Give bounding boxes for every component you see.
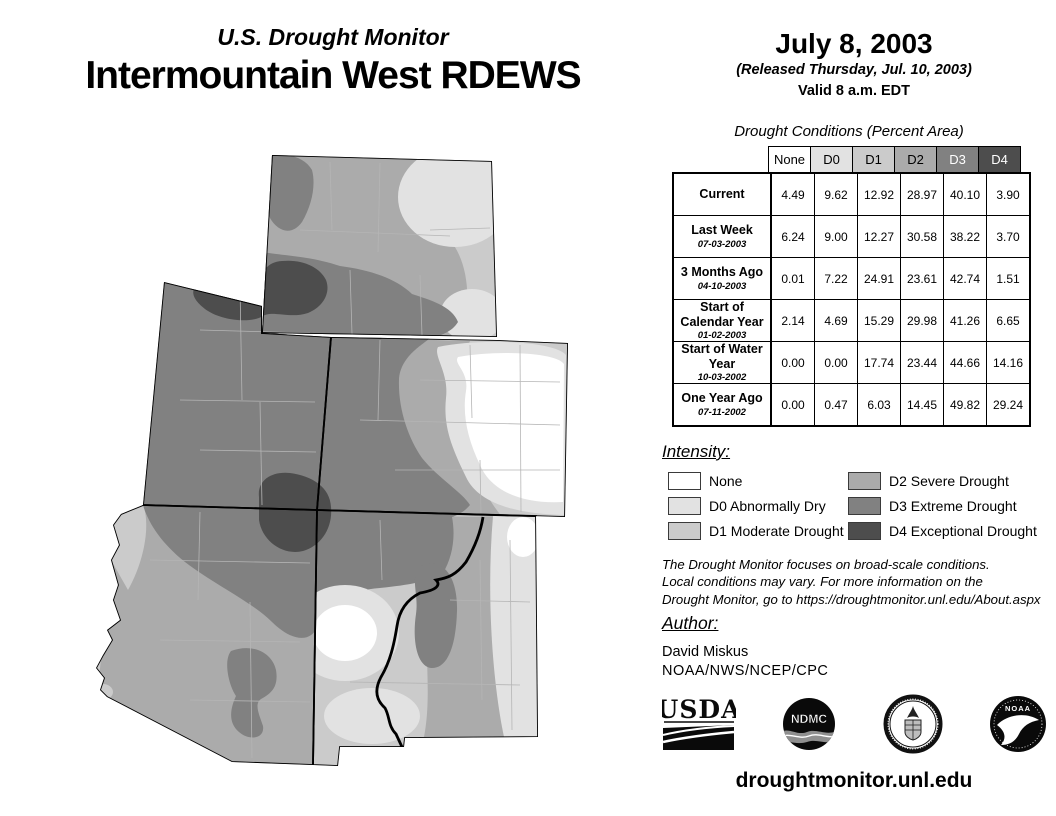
page-title: Intermountain West RDEWS — [30, 54, 636, 98]
legend-item: D2 Severe Drought — [848, 468, 1052, 493]
value-cell: 0.00 — [815, 342, 858, 384]
table-caption: Drought Conditions (Percent Area) — [672, 123, 1026, 140]
value-cell: 29.24 — [987, 384, 1031, 427]
table-row: Last Week07-03-20036.249.0012.2730.5838.… — [673, 216, 1030, 258]
row-label: One Year Ago07-11-2002 — [673, 384, 771, 427]
legend-label: D0 Abnormally Dry — [709, 498, 826, 514]
footer-url: droughtmonitor.unl.edu — [656, 769, 1052, 793]
value-cell: 3.70 — [987, 216, 1031, 258]
table-row: Start of Water Year10-03-20020.000.0017.… — [673, 342, 1030, 384]
legend-item: D1 Moderate Drought — [668, 518, 848, 543]
commerce-seal — [883, 694, 943, 754]
d3-swatch — [848, 497, 881, 515]
legend-label: D2 Severe Drought — [889, 473, 1009, 489]
shade-none-newmexico-ne — [507, 517, 539, 557]
d0-swatch — [668, 497, 701, 515]
value-cell: 9.00 — [815, 216, 858, 258]
drought-map-svg — [80, 130, 580, 780]
ndmc-logo: NDMC — [781, 696, 837, 752]
table-header-row: NoneD0D1D2D3D4 — [768, 146, 1021, 173]
author-heading: Author: — [662, 613, 718, 634]
disclaimer-line: Local conditions may vary. For more info… — [662, 573, 1041, 590]
row-label: Start of Calendar Year01-02-2003 — [673, 300, 771, 342]
table-row: Current4.499.6212.9228.9740.103.90 — [673, 173, 1030, 216]
value-cell: 15.29 — [858, 300, 901, 342]
drought-map — [80, 130, 580, 780]
value-cell: 42.74 — [944, 258, 987, 300]
value-cell: 12.92 — [858, 173, 901, 216]
row-label: 3 Months Ago04-10-2003 — [673, 258, 771, 300]
column-header-none: None — [768, 146, 811, 173]
disclaimer-line: The Drought Monitor focuses on broad-sca… — [662, 556, 1041, 573]
value-cell: 3.90 — [987, 173, 1031, 216]
legend-label: D3 Extreme Drought — [889, 498, 1017, 514]
released-date: (Released Thursday, Jul. 10, 2003) — [656, 62, 1052, 78]
shade-d0-wyoming-ne — [398, 147, 512, 247]
value-cell: 30.58 — [901, 216, 944, 258]
none-swatch — [668, 472, 701, 490]
value-cell: 4.69 — [815, 300, 858, 342]
legend-label: None — [709, 473, 742, 489]
row-label: Last Week07-03-2003 — [673, 216, 771, 258]
intensity-legend: NoneD0 Abnormally DryD1 Moderate Drought… — [668, 468, 1052, 543]
value-cell: 29.98 — [901, 300, 944, 342]
author-org: NOAA/NWS/NCEP/CPC — [662, 663, 828, 679]
legend-label: D4 Exceptional Drought — [889, 523, 1037, 539]
value-cell: 24.91 — [858, 258, 901, 300]
ndmc-logo-text: NDMC — [791, 712, 827, 726]
value-cell: 2.14 — [771, 300, 815, 342]
report-supertitle: U.S. Drought Monitor — [30, 24, 636, 51]
row-label: Current — [673, 173, 771, 216]
title-block: U.S. Drought Monitor Intermountain West … — [30, 24, 636, 98]
row-label: Start of Water Year10-03-2002 — [673, 342, 771, 384]
value-cell: 38.22 — [944, 216, 987, 258]
value-cell: 41.26 — [944, 300, 987, 342]
column-header-d0: D0 — [810, 146, 853, 173]
noaa-logo-text: NOAA — [1005, 704, 1031, 713]
usda-logo: USDA — [662, 696, 736, 752]
column-header-d1: D1 — [852, 146, 895, 173]
value-cell: 0.01 — [771, 258, 815, 300]
drought-shading — [80, 130, 580, 780]
d4-swatch — [848, 522, 881, 540]
value-cell: 7.22 — [815, 258, 858, 300]
noaa-logo: NOAA — [988, 694, 1048, 754]
d1-swatch — [668, 522, 701, 540]
value-cell: 4.49 — [771, 173, 815, 216]
table-row: 3 Months Ago04-10-20030.017.2224.9123.61… — [673, 258, 1030, 300]
legend-heading: Intensity: — [662, 442, 730, 462]
column-header-d3: D3 — [936, 146, 979, 173]
value-cell: 44.66 — [944, 342, 987, 384]
legend-item: D4 Exceptional Drought — [848, 518, 1052, 543]
value-cell: 6.03 — [858, 384, 901, 427]
d2-swatch — [848, 472, 881, 490]
shade-d4-utah-wyoming — [193, 261, 327, 321]
legend-item: D0 Abnormally Dry — [668, 493, 848, 518]
drought-monitor-graphic: { "header": { "supertitle": "U.S. Drough… — [0, 0, 1056, 816]
map-date: July 8, 2003 — [656, 28, 1052, 60]
value-cell: 49.82 — [944, 384, 987, 427]
legend-item: D3 Extreme Drought — [848, 493, 1052, 518]
value-cell: 23.44 — [901, 342, 944, 384]
value-cell: 6.24 — [771, 216, 815, 258]
value-cell: 9.62 — [815, 173, 858, 216]
author-name: David Miskus — [662, 644, 748, 660]
value-cell: 23.61 — [901, 258, 944, 300]
value-cell: 28.97 — [901, 173, 944, 216]
drought-percent-table: Current4.499.6212.9228.9740.103.90Last W… — [672, 172, 1031, 427]
value-cell: 14.45 — [901, 384, 944, 427]
legend-item: None — [668, 468, 848, 493]
value-cell: 0.00 — [771, 384, 815, 427]
table-row: One Year Ago07-11-20020.000.476.0314.454… — [673, 384, 1030, 427]
disclaimer-line: Drought Monitor, go to https://droughtmo… — [662, 591, 1041, 608]
value-cell: 14.16 — [987, 342, 1031, 384]
shade-none-newmexico-c — [313, 605, 377, 661]
table-row: Start of Calendar Year01-02-20032.144.69… — [673, 300, 1030, 342]
legend-label: D1 Moderate Drought — [709, 523, 844, 539]
disclaimer-text: The Drought Monitor focuses on broad-sca… — [662, 556, 1041, 608]
value-cell: 0.00 — [771, 342, 815, 384]
shade-d0-newmexico-s — [324, 688, 420, 744]
value-cell: 0.47 — [815, 384, 858, 427]
value-cell: 1.51 — [987, 258, 1031, 300]
value-cell: 17.74 — [858, 342, 901, 384]
usda-logo-text: USDA — [662, 696, 736, 724]
value-cell: 40.10 — [944, 173, 987, 216]
value-cell: 12.27 — [858, 216, 901, 258]
value-cell: 6.65 — [987, 300, 1031, 342]
column-header-d2: D2 — [894, 146, 937, 173]
valid-time: Valid 8 a.m. EDT — [656, 83, 1052, 99]
agency-logos: USDA NDMC NOAA — [662, 694, 1048, 754]
column-header-d4: D4 — [978, 146, 1021, 173]
